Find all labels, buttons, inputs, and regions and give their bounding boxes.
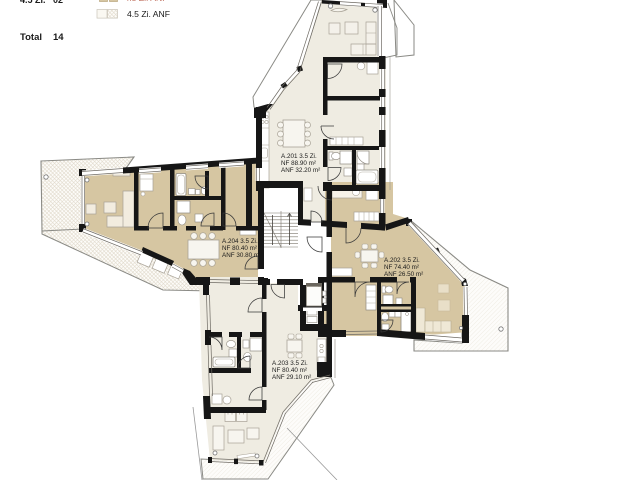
svg-text:NF 80.40 m²: NF 80.40 m²	[222, 245, 257, 252]
svg-text:ANF 26.50 m²: ANF 26.50 m²	[384, 271, 423, 278]
svg-text:4.5 Zi. ANF: 4.5 Zi. ANF	[125, 0, 168, 3]
svg-text:ANF 29.10 m²: ANF 29.10 m²	[272, 374, 311, 381]
svg-text:ANF 32.20 m²: ANF 32.20 m²	[281, 167, 320, 174]
svg-text:Total: Total	[20, 32, 42, 43]
svg-text:A.201 3.5 Zi.: A.201 3.5 Zi.	[281, 153, 317, 160]
svg-text:4.5 Zi.: 4.5 Zi.	[20, 0, 46, 5]
svg-text:A.204 3.5 Zi.: A.204 3.5 Zi.	[222, 238, 258, 245]
svg-text:NF 88.90 m²: NF 88.90 m²	[281, 160, 316, 167]
svg-text:A.202 3.5 Zi.: A.202 3.5 Zi.	[384, 257, 420, 264]
svg-text:NF 74.40 m²: NF 74.40 m²	[384, 264, 419, 271]
svg-text:02: 02	[53, 0, 63, 5]
svg-text:NF 80.40 m²: NF 80.40 m²	[272, 367, 307, 374]
svg-text:14: 14	[53, 32, 64, 43]
svg-text:A.203 3.5 Zi.: A.203 3.5 Zi.	[272, 360, 308, 367]
svg-text:ANF 30.80 m²: ANF 30.80 m²	[222, 252, 261, 259]
svg-text:4.5 Zi. ANF: 4.5 Zi. ANF	[127, 9, 170, 19]
